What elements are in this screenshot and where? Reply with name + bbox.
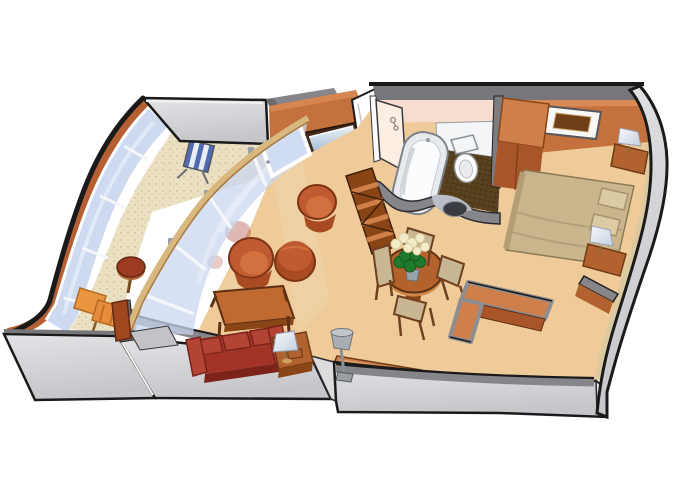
suite-floor-plan-illustration (0, 0, 680, 486)
partition-end-post (112, 300, 131, 341)
suite-floor-plan-page (0, 0, 680, 486)
vanity-basin (443, 202, 467, 217)
top-wall (371, 84, 643, 100)
wall-picture (541, 106, 601, 139)
bathroom (370, 96, 503, 224)
